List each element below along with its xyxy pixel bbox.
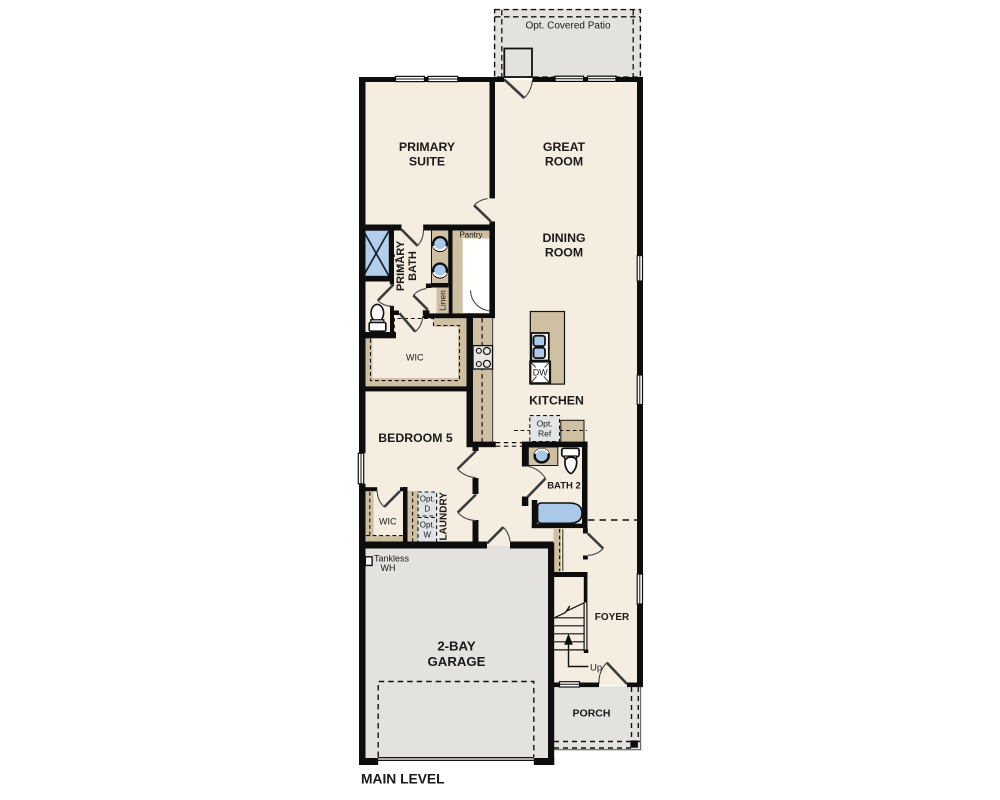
svg-text:GARAGE: GARAGE bbox=[428, 654, 486, 669]
svg-text:PRIMARY: PRIMARY bbox=[395, 240, 407, 291]
svg-text:Opt.: Opt. bbox=[537, 419, 553, 429]
svg-text:W: W bbox=[424, 531, 432, 540]
svg-text:BATH 2: BATH 2 bbox=[547, 481, 581, 492]
svg-text:DINING: DINING bbox=[542, 231, 585, 245]
svg-text:DW: DW bbox=[533, 368, 548, 378]
svg-text:Tankless: Tankless bbox=[374, 554, 410, 564]
svg-text:MAIN LEVEL: MAIN LEVEL bbox=[361, 772, 445, 787]
svg-text:D: D bbox=[424, 505, 430, 514]
svg-text:Opt.: Opt. bbox=[420, 495, 435, 504]
svg-text:GREAT: GREAT bbox=[543, 140, 586, 154]
svg-text:Ref: Ref bbox=[538, 429, 552, 439]
svg-text:PORCH: PORCH bbox=[573, 708, 611, 720]
svg-text:WIC: WIC bbox=[406, 353, 424, 363]
svg-text:Opt. Covered Patio: Opt. Covered Patio bbox=[525, 21, 610, 32]
svg-text:2-BAY: 2-BAY bbox=[437, 639, 476, 654]
svg-text:PRIMARY: PRIMARY bbox=[399, 140, 455, 154]
svg-text:Opt.: Opt. bbox=[420, 521, 435, 530]
svg-text:BATH: BATH bbox=[407, 251, 419, 281]
svg-text:BEDROOM 5: BEDROOM 5 bbox=[378, 431, 453, 445]
svg-text:FOYER: FOYER bbox=[595, 612, 630, 623]
svg-text:Linen: Linen bbox=[438, 290, 448, 311]
svg-text:LAUNDRY: LAUNDRY bbox=[439, 492, 450, 541]
svg-text:ROOM: ROOM bbox=[545, 154, 583, 168]
svg-text:Pantry: Pantry bbox=[459, 230, 482, 239]
svg-text:SUITE: SUITE bbox=[409, 154, 445, 168]
svg-text:ROOM: ROOM bbox=[545, 246, 583, 260]
svg-text:KITCHEN: KITCHEN bbox=[529, 394, 584, 408]
svg-text:WIC: WIC bbox=[379, 517, 397, 527]
svg-text:WH: WH bbox=[381, 563, 396, 573]
